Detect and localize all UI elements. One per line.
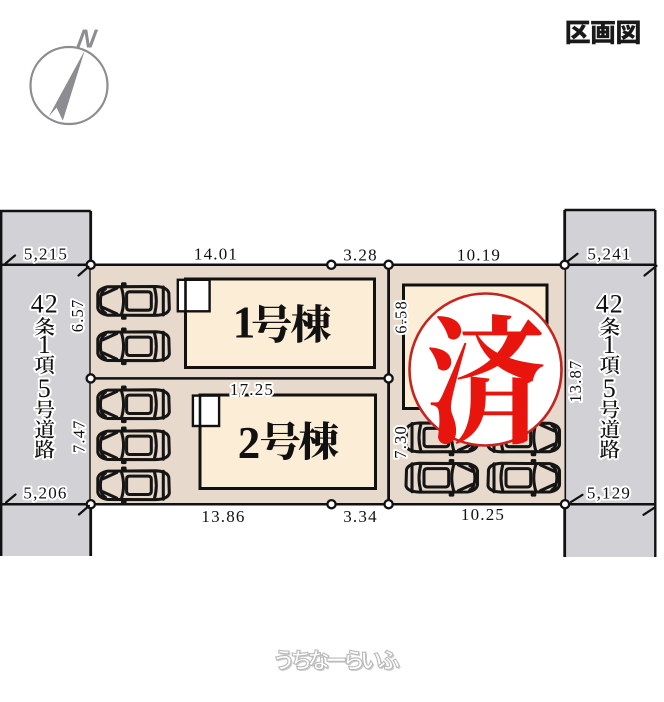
svg-text:13.86: 13.86 xyxy=(201,507,245,526)
svg-text:7.30: 7.30 xyxy=(391,425,410,459)
svg-text:5,241: 5,241 xyxy=(587,245,631,264)
svg-text:13.87: 13.87 xyxy=(566,360,585,403)
svg-text:7.47: 7.47 xyxy=(70,419,89,453)
svg-text:3.28: 3.28 xyxy=(343,246,378,265)
svg-text:5,129: 5,129 xyxy=(587,484,631,503)
svg-text:10.25: 10.25 xyxy=(461,505,505,524)
svg-text:17.25: 17.25 xyxy=(230,380,274,399)
svg-text:5,215: 5,215 xyxy=(24,245,68,264)
svg-text:3.34: 3.34 xyxy=(343,507,378,526)
svg-text:42: 42 xyxy=(596,290,624,319)
svg-text:6.57: 6.57 xyxy=(68,299,87,333)
svg-text:6.58: 6.58 xyxy=(391,300,410,334)
svg-text:1: 1 xyxy=(38,330,52,359)
svg-text:2: 2 xyxy=(238,418,261,468)
svg-text:1: 1 xyxy=(603,330,617,359)
svg-text:5,206: 5,206 xyxy=(23,484,67,503)
svg-text:1: 1 xyxy=(233,298,256,348)
svg-text:10.19: 10.19 xyxy=(457,246,501,265)
svg-text:14.01: 14.01 xyxy=(194,245,238,264)
svg-text:42: 42 xyxy=(31,290,59,319)
